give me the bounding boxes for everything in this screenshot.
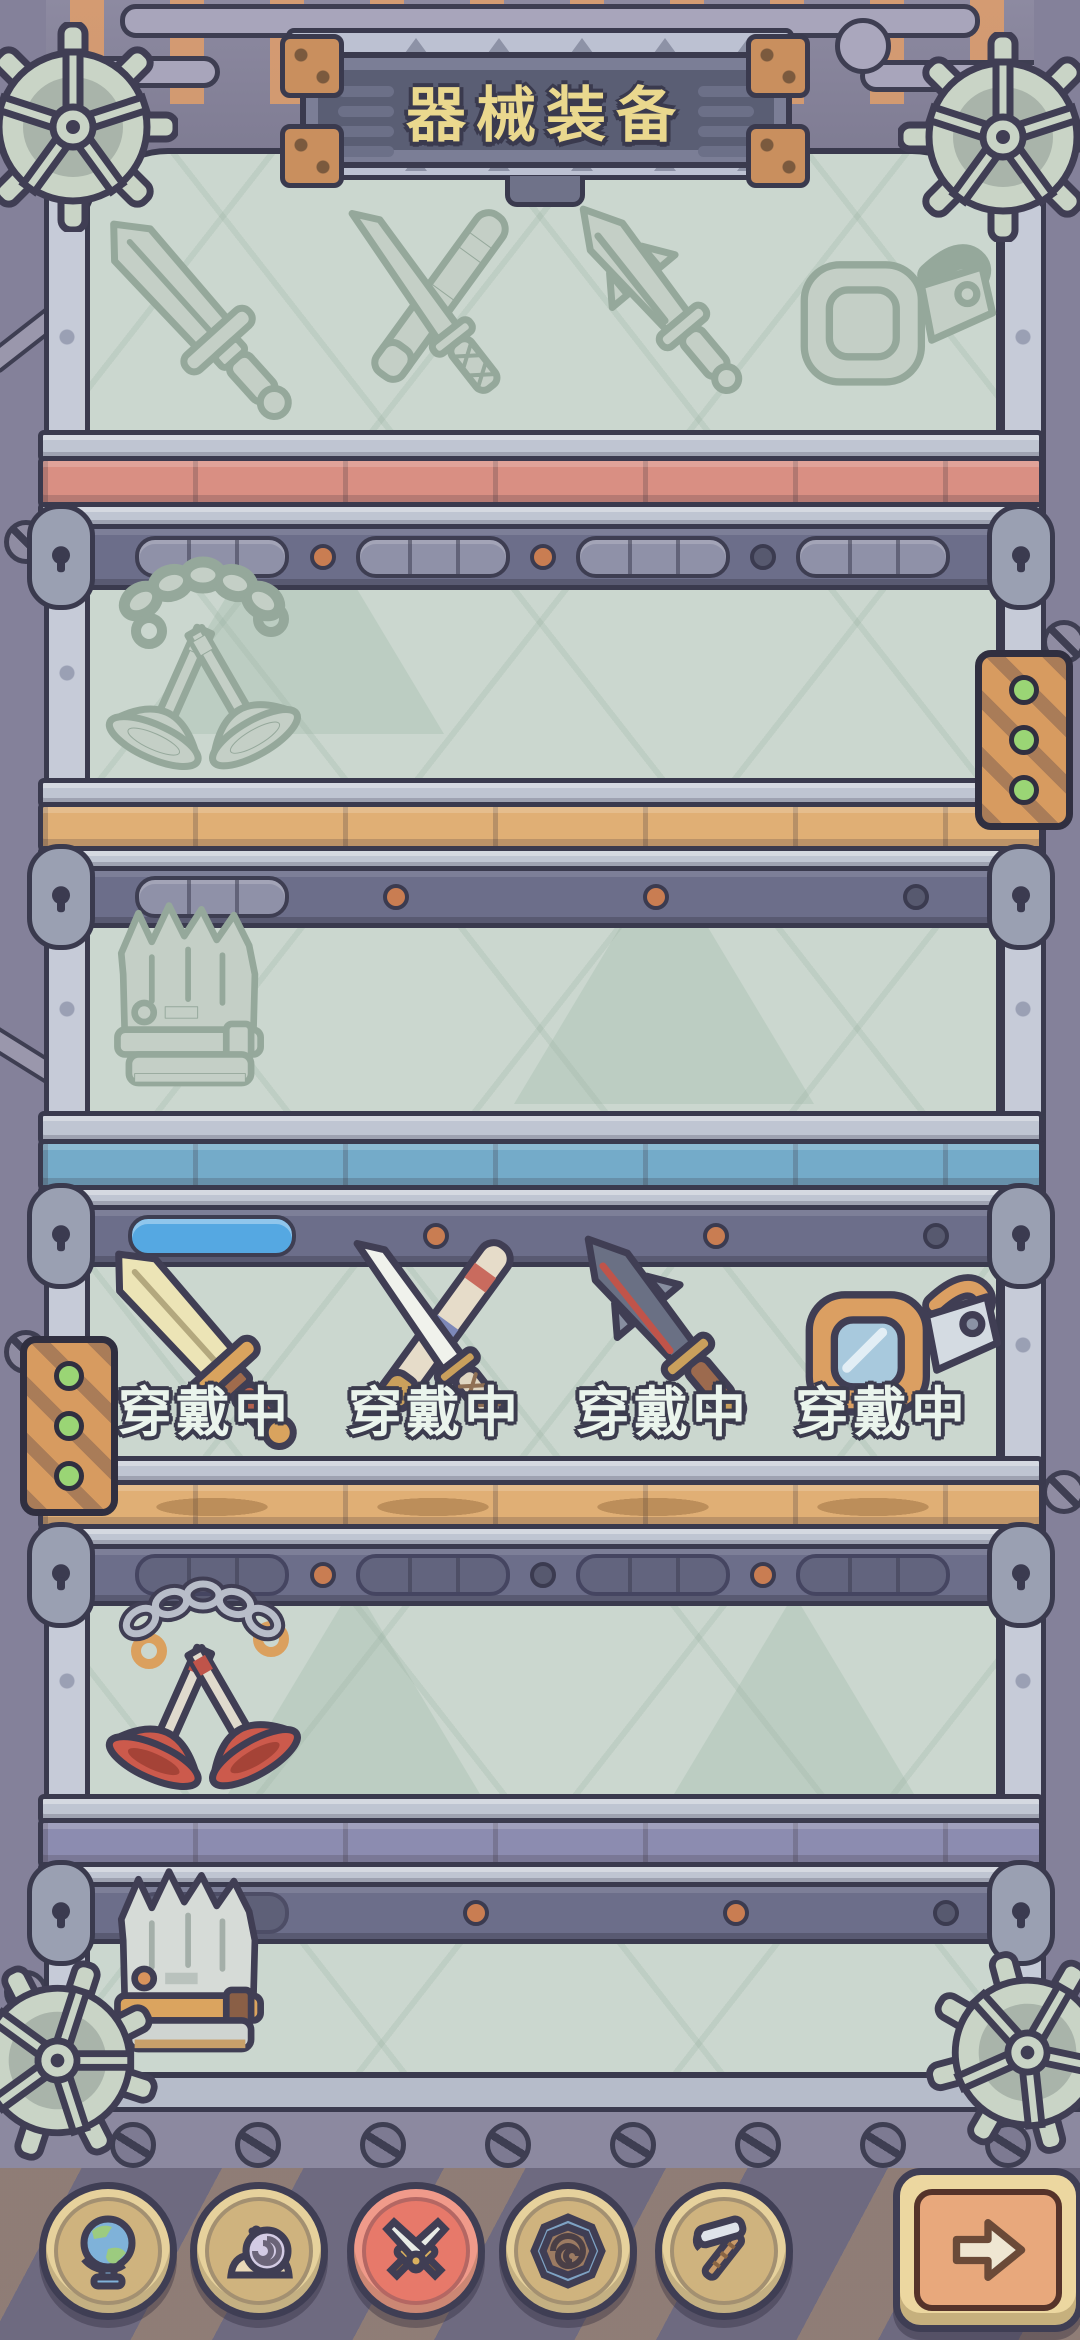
led-icon [1009,725,1039,755]
rivet-icon [903,884,929,910]
rivet-icon [723,1900,749,1926]
keyhole-icon [52,886,70,904]
nav-spiral-button[interactable] [499,2182,637,2320]
nav-world-inner [54,2197,162,2305]
gauge-pill [356,536,510,578]
rivet-triangle-icon [654,38,676,53]
gauge-pill [796,1554,950,1596]
bottom-ledge [0,2072,1080,2112]
equipped-badge: 穿戴中 [325,1368,545,1447]
item-chain-plungers-silhouette[interactable] [75,545,325,795]
rivet-icon [530,1562,556,1588]
gauge-segment [848,1558,852,1592]
nav-equipment-button[interactable] [347,2182,485,2320]
rivet-icon [383,884,409,910]
gauge-segment [628,1558,632,1592]
corner-bracket-icon [280,124,344,188]
globe-icon [68,2211,148,2291]
led-icon [54,1361,84,1391]
rivet-triangle-icon [488,38,510,53]
bottom-screw-band [0,2112,1080,2168]
screw-icon [1042,1470,1080,1514]
screw-icon [610,2122,656,2168]
corner-bracket-icon [280,34,344,98]
title-plate: 器械装备 [272,28,808,180]
gear-icon [925,1950,1080,2155]
keyhole-icon [52,1902,70,1920]
right-hinge [975,650,1073,830]
corner-bracket-icon [746,34,810,98]
rivet-icon [463,1900,489,1926]
corner-bracket-icon [746,124,810,188]
shelf-plank-red [38,456,1044,508]
gauge-segment [896,1558,900,1592]
item-rocket-dagger-silhouette[interactable] [545,175,785,435]
left-hinge [20,1336,118,1516]
keyhole-icon [52,1564,70,1582]
led-icon [1009,775,1039,805]
screw-icon [860,2122,906,2168]
item-stone-crown-silhouette[interactable] [85,886,295,1116]
gear-icon [898,32,1080,242]
led-icon [1009,675,1039,705]
rivet-icon [750,544,776,570]
equipment-screen: 穿戴中 穿戴中 穿戴中 穿戴中 [0,0,1080,2340]
valve-icon [835,18,891,74]
rivet-icon [933,1900,959,1926]
gauge-pill [576,1554,730,1596]
nav-spiral-inner [514,2197,622,2305]
nav-snail-inner [205,2197,313,2305]
gauge-segment [676,1558,680,1592]
rivet-icon [643,884,669,910]
rivet-icon [530,544,556,570]
keyhole-icon [1012,1564,1030,1582]
keyhole-icon [1012,1902,1030,1920]
equipped-badge: 穿戴中 [772,1368,992,1447]
gear-icon [0,1958,160,2163]
equipped-badge: 穿戴中 [553,1368,773,1447]
bar-end-cap [987,844,1055,950]
next-page-button[interactable] [893,2168,1080,2332]
snail-icon [219,2211,299,2291]
gauge-pill [796,536,950,578]
keyhole-icon [1012,546,1030,564]
gauge-segment [456,1558,460,1592]
gauge-segment [848,540,852,574]
gauge-segment [408,540,412,574]
gauge-segment [676,540,680,574]
rivet-triangle-icon [405,38,427,53]
spiral-icon [528,2211,608,2291]
rivet-icon [750,1562,776,1588]
gauge-segment [408,1558,412,1592]
gear-icon [0,22,178,232]
screw-icon [735,2122,781,2168]
led-icon [54,1461,84,1491]
plate-tab [505,176,585,207]
nav-equipment-inner [362,2197,470,2305]
bar-end-cap [987,1522,1055,1628]
screw-icon [235,2122,281,2168]
next-page-inner [914,2189,1062,2311]
equipped-badge: 穿戴中 [95,1368,315,1447]
vent-slots [338,86,394,157]
shelf-plank-blue [38,1139,1044,1191]
keyhole-icon [1012,1225,1030,1243]
keyhole-icon [1012,886,1030,904]
gauge-segment [456,540,460,574]
item-katana-silhouette[interactable] [310,180,550,440]
bar-end-cap [987,504,1055,610]
gauge-segment [628,540,632,574]
crossed-swords-icon [376,2211,456,2291]
arrow-right-icon [938,2208,1038,2292]
nav-world-button[interactable] [39,2182,177,2320]
rivet-triangle-icon [571,38,593,53]
nav-workshop-button[interactable] [655,2182,793,2320]
gauge-segment [896,540,900,574]
item-chain-plungers[interactable] [75,1565,325,1815]
gauge-pill [356,1554,510,1596]
nav-snail-button[interactable] [190,2182,328,2320]
shelf-plank-orange [38,802,1044,852]
keyhole-icon [52,1225,70,1243]
hammer-icon [684,2211,764,2291]
nav-workshop-inner [670,2197,778,2305]
screw-icon [485,2122,531,2168]
shelf-plank-orange [38,1480,1044,1530]
plate-core: 器械装备 [300,52,792,168]
screw-icon [360,2122,406,2168]
page-title: 器械装备 [406,67,686,154]
led-icon [54,1411,84,1441]
keyhole-icon [52,546,70,564]
plate-inner-panel: 器械装备 [318,70,774,150]
gauge-pill [576,536,730,578]
